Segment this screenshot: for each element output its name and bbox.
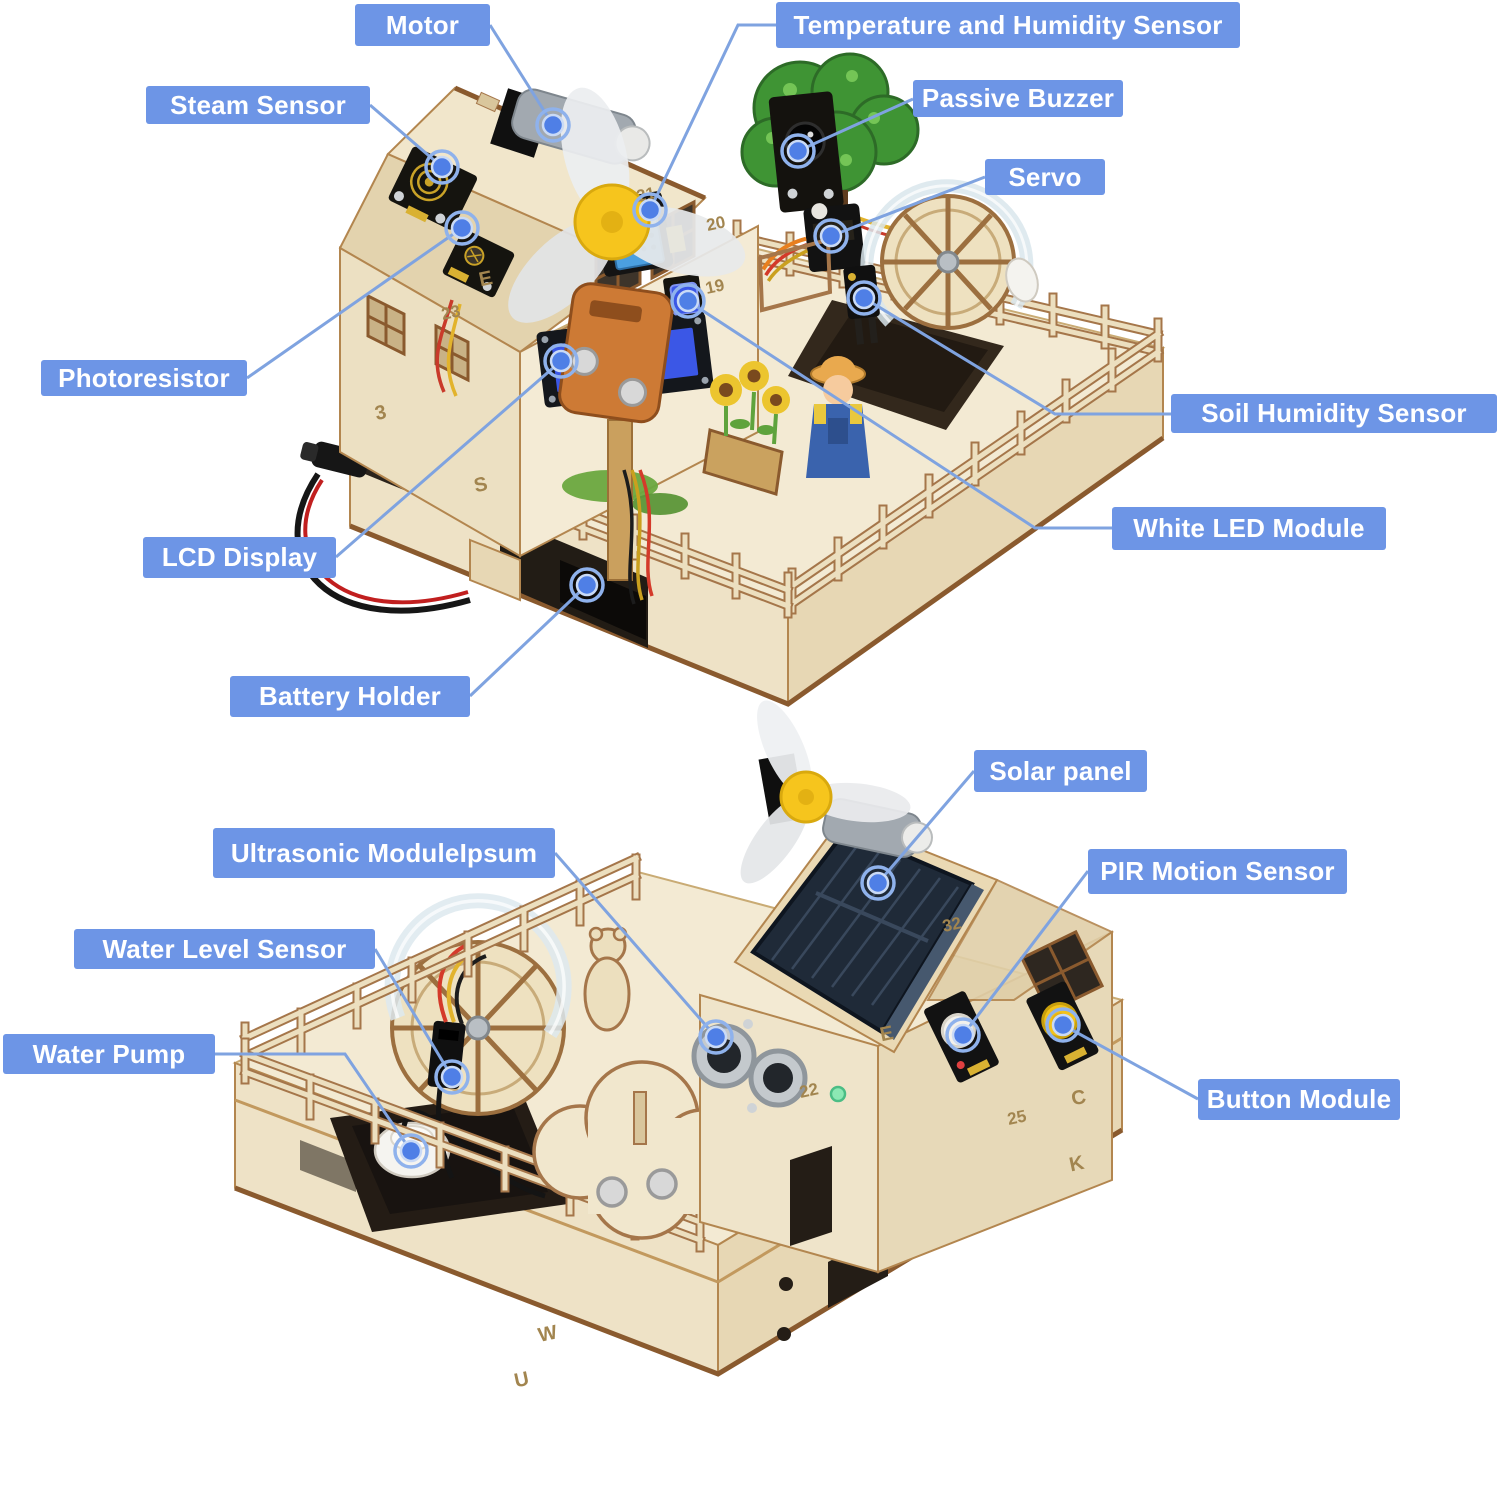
label-water-level-sensor: Water Level Sensor xyxy=(74,929,375,969)
leader-line-battery-holder xyxy=(470,585,587,696)
anchor-dot-servo xyxy=(821,226,841,246)
annotated-product-diagram: keyes 32.8 xyxy=(0,0,1500,1496)
label-ultrasonic-module: Ultrasonic ModuleIpsum xyxy=(213,828,555,878)
label-pir-motion-sensor: PIR Motion Sensor xyxy=(1088,849,1347,894)
label-passive-buzzer: Passive Buzzer xyxy=(913,80,1123,117)
engraved-mark: 23 xyxy=(440,301,462,324)
label-motor: Motor xyxy=(355,4,490,46)
anchor-dot-ultrasonic-module xyxy=(706,1027,726,1047)
engraved-mark: W xyxy=(536,1321,559,1346)
label-lcd-display: LCD Display xyxy=(143,537,336,578)
bear-cutout xyxy=(585,928,629,1030)
anchor-dot-button-module xyxy=(1053,1015,1073,1035)
label-solar-panel: Solar panel xyxy=(974,750,1147,792)
engraved-mark: 25 xyxy=(1006,1106,1028,1129)
anchor-dot-motor xyxy=(543,115,563,135)
anchor-dot-temperature-humidity-sensor xyxy=(640,200,660,220)
anchor-dot-white-led-module xyxy=(678,291,698,311)
anchor-dot-steam-sensor xyxy=(432,157,452,177)
label-white-led-module: White LED Module xyxy=(1112,507,1386,550)
label-photoresistor: Photoresistor xyxy=(41,360,247,396)
engraved-mark: 20 xyxy=(705,212,727,235)
label-servo: Servo xyxy=(985,159,1105,195)
anchor-dot-water-level-sensor xyxy=(442,1067,462,1087)
farmer-figure xyxy=(806,356,870,478)
anchor-dot-water-pump xyxy=(401,1141,421,1161)
scene-illustration: keyes 32.8 xyxy=(0,0,1500,1496)
engraved-mark: 22 xyxy=(798,1079,820,1102)
label-soil-humidity-sensor: Soil Humidity Sensor xyxy=(1171,394,1497,433)
anchor-dot-solar-panel xyxy=(868,873,888,893)
label-button-module: Button Module xyxy=(1198,1079,1400,1120)
anchor-dot-passive-buzzer xyxy=(788,141,808,161)
engraved-mark: 32 xyxy=(941,913,963,936)
engraved-mark: U xyxy=(512,1368,531,1393)
anchor-dot-lcd-display xyxy=(551,351,571,371)
engraved-mark: 19 xyxy=(704,275,726,298)
label-water-pump: Water Pump xyxy=(3,1034,215,1074)
anchor-dot-pir-motion-sensor xyxy=(953,1025,973,1045)
anchor-dot-soil-humidity-sensor xyxy=(854,288,874,308)
label-steam-sensor: Steam Sensor xyxy=(146,86,370,124)
label-temperature-humidity-sensor: Temperature and Humidity Sensor xyxy=(776,2,1240,48)
anchor-dot-battery-holder xyxy=(577,575,597,595)
top-model: keyes 32.8 xyxy=(298,54,1163,704)
label-battery-holder: Battery Holder xyxy=(230,676,470,717)
bottom-model xyxy=(235,693,1122,1374)
anchor-dot-photoresistor xyxy=(452,218,472,238)
